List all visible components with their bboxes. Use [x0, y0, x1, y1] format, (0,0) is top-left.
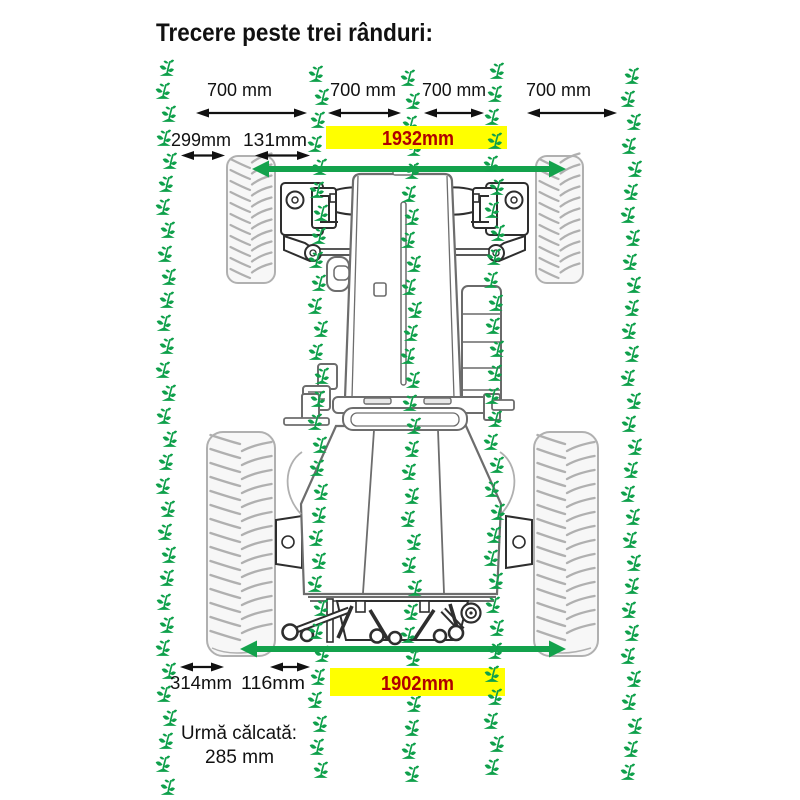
svg-text:Urmă călcată:: Urmă călcată:: [181, 723, 297, 744]
svg-text:700 mm: 700 mm: [422, 80, 486, 100]
svg-text:116mm: 116mm: [241, 673, 305, 693]
svg-text:1932mm: 1932mm: [382, 128, 454, 150]
svg-text:700 mm: 700 mm: [207, 80, 272, 100]
svg-text:700 mm: 700 mm: [526, 80, 591, 100]
svg-text:314mm: 314mm: [170, 673, 232, 693]
svg-text:285 mm: 285 mm: [205, 747, 274, 768]
svg-text:Trecere peste trei rânduri:: Trecere peste trei rânduri:: [156, 19, 433, 47]
svg-text:299mm: 299mm: [171, 130, 231, 150]
svg-text:131mm: 131mm: [243, 130, 307, 150]
svg-text:700 mm: 700 mm: [330, 80, 396, 100]
svg-text:1902mm: 1902mm: [381, 673, 454, 695]
